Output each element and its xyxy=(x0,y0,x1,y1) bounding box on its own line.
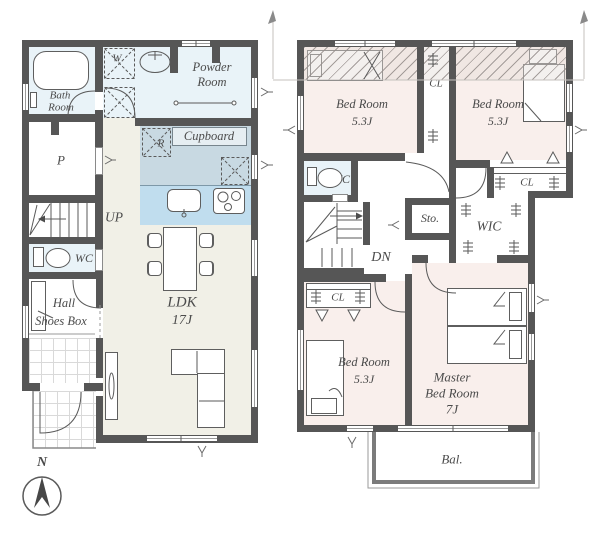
window xyxy=(566,84,573,112)
sliding-door xyxy=(332,194,348,202)
bedroom-nw-label: Bed Room xyxy=(336,98,388,111)
fridge-label: R xyxy=(158,139,165,150)
bedroom-ne-size-label: 5.3J xyxy=(488,115,508,127)
sliding-door xyxy=(95,147,103,175)
closet-mid-label: CL xyxy=(429,79,442,90)
shoes-box-label: Shoes Box xyxy=(35,315,87,328)
window xyxy=(297,96,304,130)
bed-pillow xyxy=(509,292,522,321)
wall xyxy=(449,47,456,160)
wall xyxy=(22,114,103,122)
hall-label: Hall xyxy=(53,297,75,310)
bedroom-sw-size-label: 5.3J xyxy=(354,373,374,385)
dining-chair xyxy=(199,233,214,248)
wall xyxy=(96,396,103,443)
wall xyxy=(84,383,103,391)
wall xyxy=(417,47,424,153)
dining-table xyxy=(163,227,197,291)
window xyxy=(528,284,535,312)
wc-label: WC xyxy=(75,252,93,264)
floorplan-image: Bath Room W Powder Room P UP WC Hall Sho… xyxy=(0,0,600,551)
closet-ne-label: CL xyxy=(520,178,533,189)
bed-pillow xyxy=(509,330,522,359)
bed-footbox xyxy=(311,398,337,414)
window xyxy=(398,425,508,432)
sofa xyxy=(171,349,225,375)
wall xyxy=(405,198,412,240)
window xyxy=(335,40,395,47)
ldk-label: LDK xyxy=(167,296,196,311)
window xyxy=(251,78,258,108)
window xyxy=(297,330,304,390)
closet-sw-label: CL xyxy=(331,293,344,304)
dining-chair xyxy=(147,261,162,276)
wall xyxy=(22,272,103,279)
stairs-dn-label: DN xyxy=(371,251,390,265)
window xyxy=(251,350,258,407)
bedroom-nw-size-label: 5.3J xyxy=(352,115,372,127)
wall xyxy=(405,274,412,425)
pantry-label: P xyxy=(57,154,65,167)
wall xyxy=(304,274,386,282)
compass-north-label: N xyxy=(37,456,47,470)
sofa xyxy=(197,373,225,428)
balcony-label: Bal. xyxy=(441,453,462,466)
entrance-porch xyxy=(33,391,96,448)
wall xyxy=(22,237,103,244)
tv-board xyxy=(105,352,118,420)
window xyxy=(147,435,217,443)
window xyxy=(528,334,535,360)
sliding-door xyxy=(95,249,103,271)
wall xyxy=(487,167,494,198)
wall xyxy=(170,47,178,73)
window xyxy=(251,240,258,276)
toilet-tank xyxy=(307,167,317,186)
dining-chair xyxy=(147,233,162,248)
wall xyxy=(405,198,456,205)
window xyxy=(22,84,29,110)
sloped-ceiling-hatch xyxy=(304,47,566,80)
wall xyxy=(22,40,258,47)
entrance-genkan xyxy=(29,338,96,383)
wall xyxy=(351,160,358,195)
wall xyxy=(96,338,103,378)
balcony-wall xyxy=(531,432,535,484)
wall xyxy=(95,47,103,92)
window xyxy=(347,425,373,432)
window xyxy=(182,40,210,47)
wic-label: WIC xyxy=(477,219,502,233)
wall xyxy=(449,160,456,263)
window xyxy=(251,155,258,179)
window xyxy=(432,40,516,47)
wall xyxy=(51,122,59,135)
wall xyxy=(135,118,251,126)
toilet-tank xyxy=(33,247,44,267)
wall xyxy=(497,255,535,263)
bath-room-label: Room xyxy=(48,103,74,114)
wall xyxy=(95,203,103,237)
bedroom-sw-label: Bed Room xyxy=(338,356,390,369)
wall xyxy=(22,383,40,391)
stairs-up-label: UP xyxy=(105,210,123,224)
bath-room-label: Bath xyxy=(50,91,71,102)
shower-fixture xyxy=(30,92,37,108)
ldk-size-label: 17J xyxy=(172,314,192,328)
wall xyxy=(95,110,103,118)
balcony-wall xyxy=(372,432,376,484)
powder-room-label: Powder xyxy=(193,61,232,74)
powder-room-label: Room xyxy=(197,76,226,89)
wall xyxy=(412,255,428,263)
bedroom-ne-label: Bed Room xyxy=(472,98,524,111)
storage-label: Sto. xyxy=(421,212,439,224)
kitchen-stove xyxy=(213,188,245,214)
wall xyxy=(363,202,370,245)
wall xyxy=(22,195,103,203)
washer-label: W xyxy=(112,54,121,65)
wall xyxy=(304,195,358,202)
wall xyxy=(405,233,456,240)
balcony-wall xyxy=(372,480,535,484)
kitchen-sink xyxy=(167,189,201,212)
master-bedroom-label: Bed Room xyxy=(425,387,479,400)
wall xyxy=(566,40,573,198)
cupboard-label: Cupboard xyxy=(184,130,234,143)
wc-2f-label: WC xyxy=(332,173,350,185)
wall xyxy=(96,279,103,308)
window xyxy=(566,126,573,152)
window xyxy=(22,306,29,338)
master-bedroom-size-label: 7J xyxy=(446,403,458,416)
master-bedroom-label: Master xyxy=(434,371,471,384)
bathtub xyxy=(33,51,89,90)
closet-rail xyxy=(494,167,566,174)
dining-chair xyxy=(199,261,214,276)
